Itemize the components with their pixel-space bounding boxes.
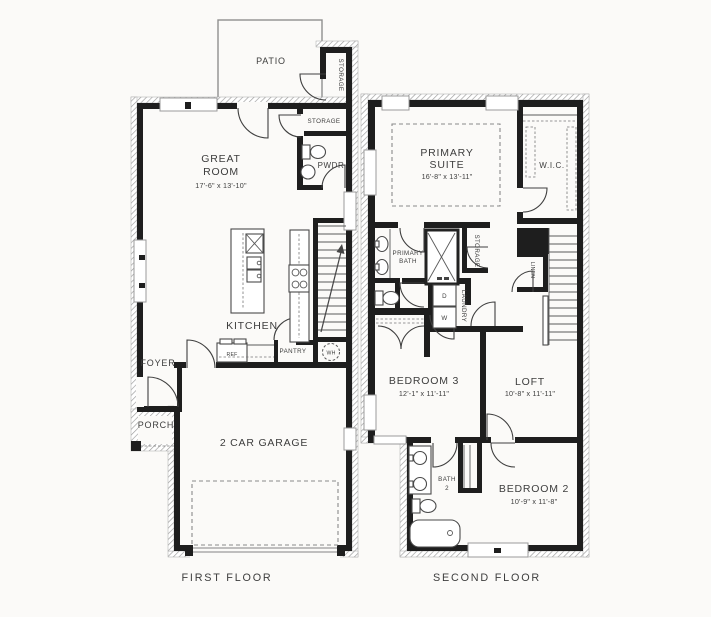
second-floor-plan: PRIMARY SUITE 16'-8" x 13'-11" W.I.C. PR… [361, 94, 589, 584]
cooktop-icon [289, 265, 309, 292]
bedroom2-door-swing [491, 443, 515, 467]
ff-porch [131, 409, 179, 451]
laundry-label: LAUNDRY [460, 290, 467, 322]
first-floor-plan: PATIO STORAGE GREAT ROOM 17'-6" x 13'-10… [131, 20, 358, 584]
primary-suite-label-line2: SUITE [430, 159, 465, 171]
primary-suite-label-line1: PRIMARY [420, 147, 473, 159]
sf-openings [398, 221, 424, 229]
dishwasher-icon [246, 234, 263, 253]
front-door-swing [148, 377, 178, 407]
toilet-icon [302, 145, 326, 159]
toilet-room-door-swing [400, 283, 424, 307]
pantry-label: PANTRY [280, 348, 307, 355]
ff-stairs [318, 226, 346, 332]
stairs-up-arrow-icon [321, 244, 345, 332]
storage2-label: STORAGE [473, 235, 480, 268]
primary-bath-label-line2: BATH [399, 258, 417, 265]
stair-rail [543, 296, 548, 345]
bath2-label-line2: 2 [445, 485, 449, 492]
kitchen-sink-icon [247, 257, 261, 282]
bath2-label-line1: BATH [438, 476, 456, 483]
powder-label: PWDR [318, 161, 345, 170]
linen-label: LINEN [529, 262, 535, 278]
patio-door-swing [238, 108, 268, 138]
porch-post [131, 441, 141, 451]
sink-icon [301, 165, 315, 179]
bath2-door-swing [433, 443, 457, 467]
primary-bath-label-line1: PRIMARY [393, 250, 424, 257]
bedroom3-closet-bifold-left [378, 326, 401, 349]
first-floor-caption: FIRST FLOOR [182, 572, 273, 584]
bedroom2-label: BEDROOM 2 [499, 483, 569, 495]
great-room-label-line1: GREAT [201, 153, 240, 165]
refrigerator-icon [217, 339, 274, 362]
loft-door-swing [487, 414, 513, 440]
bedroom3-closet-bifold-right [401, 326, 424, 349]
ff-kitchen-fixtures [217, 229, 309, 362]
laundry-door-swing [471, 302, 495, 326]
primary-suite-dims: 16'-8" x 13'-11" [422, 172, 473, 181]
bathtub-icon [410, 520, 460, 547]
sf-bath2-fixtures [409, 446, 460, 547]
primary-suite-door-swing [400, 228, 424, 252]
bedroom3-label: BEDROOM 3 [389, 375, 459, 387]
bedroom2-dims: 10'-9" x 11'-8" [511, 497, 558, 506]
loft-label: LOFT [515, 376, 545, 388]
dryer-label: D [442, 293, 447, 300]
water-heater-label: WH [326, 351, 335, 357]
bedroom3-dims: 12'-1" x 11'-11" [399, 389, 450, 398]
second-floor-caption: SECOND FLOOR [433, 572, 541, 584]
wic-rod-right [567, 127, 576, 210]
toilet-icon [375, 291, 399, 305]
toilet-icon [412, 499, 436, 513]
storage-label: STORAGE [308, 118, 341, 125]
porch-label: PORCH [138, 420, 175, 430]
shower-icon [426, 230, 458, 284]
garage-label: 2 CAR GARAGE [220, 437, 308, 449]
kitchen-label: KITCHEN [226, 320, 278, 332]
patio-storage-label: STORAGE [337, 59, 344, 92]
loft-dims: 10'-8" x 11'-11" [505, 389, 556, 398]
washer-label: W [441, 315, 447, 322]
ref-label: REF [227, 352, 238, 358]
wic-label: W.I.C. [539, 161, 564, 170]
great-room-label-line2: ROOM [203, 166, 239, 178]
wic-rod-left [526, 127, 535, 177]
wic-door-swing [523, 188, 547, 212]
sf-labels: PRIMARY SUITE 16'-8" x 13'-11" W.I.C. PR… [389, 147, 569, 584]
patio-label: PATIO [256, 56, 286, 66]
floor-plan-svg: PATIO STORAGE GREAT ROOM 17'-6" x 13'-10… [0, 0, 711, 617]
foyer-label: FOYER [140, 358, 175, 368]
garage-dashed-area [192, 481, 338, 545]
sf-closet-shelves [464, 445, 470, 488]
great-room-dims: 17'-6" x 13'-10" [195, 181, 247, 190]
floor-plan-image: PATIO STORAGE GREAT ROOM 17'-6" x 13'-10… [0, 0, 711, 617]
double-sink-icon [375, 237, 388, 275]
